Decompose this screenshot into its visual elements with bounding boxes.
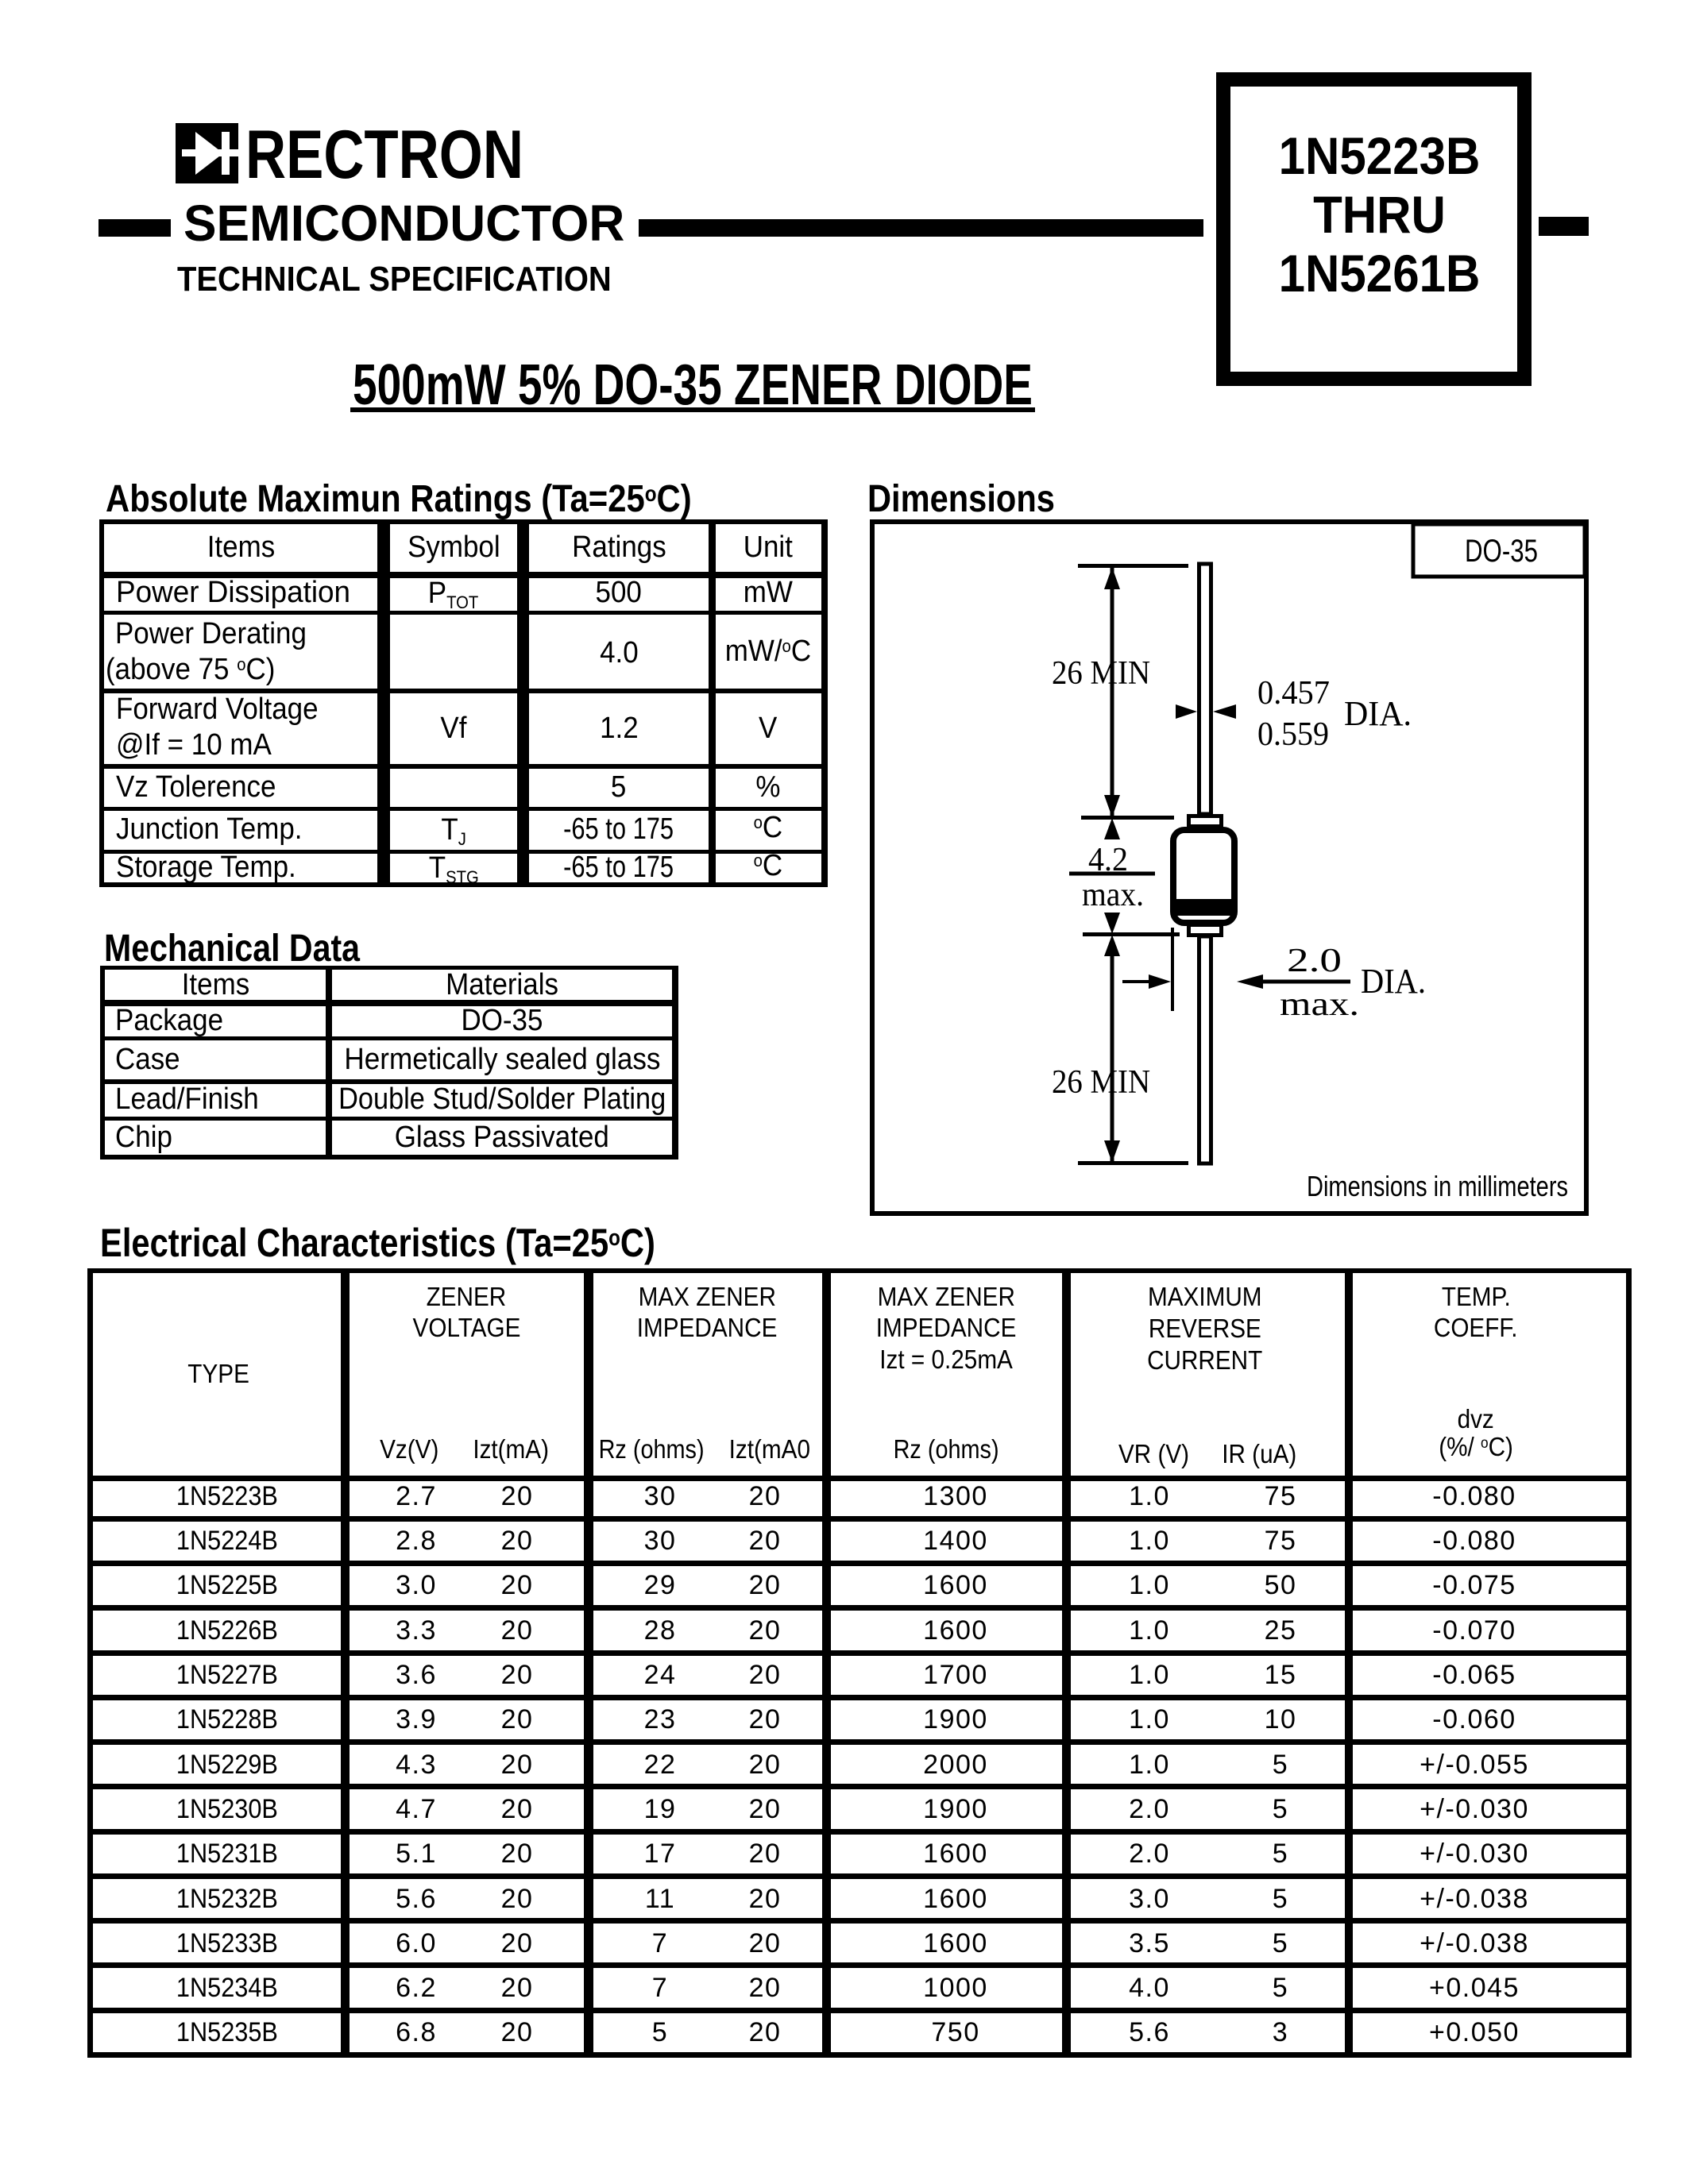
svg-text:0.559: 0.559 xyxy=(1257,716,1329,753)
svg-text:0.457: 0.457 xyxy=(1257,675,1330,712)
svg-text:Dimensions in millimeters: Dimensions in millimeters xyxy=(1307,1170,1568,1202)
svg-text:26 MIN: 26 MIN xyxy=(1052,1064,1150,1101)
svg-text:2.0: 2.0 xyxy=(1287,943,1342,979)
svg-text:max.: max. xyxy=(1280,986,1359,1023)
svg-text:DIA.: DIA. xyxy=(1361,962,1426,1001)
svg-text:DIA.: DIA. xyxy=(1344,694,1412,733)
svg-text:DO-35: DO-35 xyxy=(1465,534,1538,569)
svg-text:26 MIN: 26 MIN xyxy=(1052,655,1150,692)
svg-text:max.: max. xyxy=(1082,877,1144,913)
